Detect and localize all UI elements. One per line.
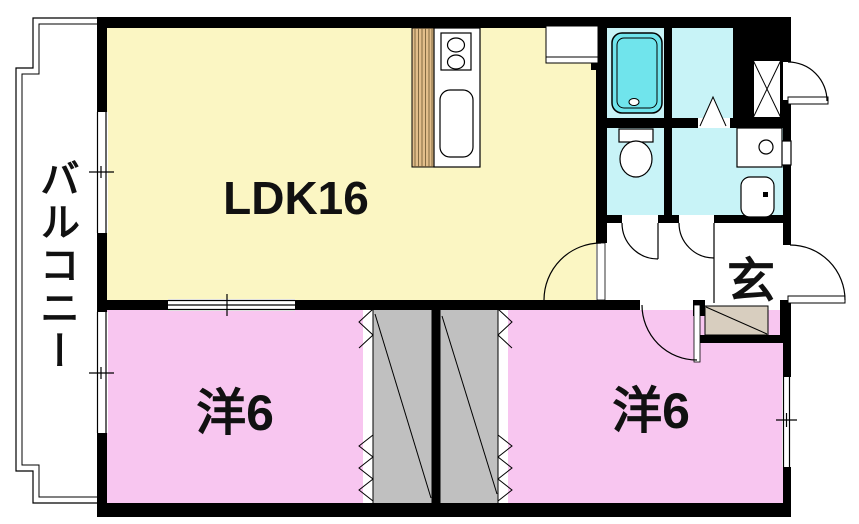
wall-right-d	[783, 342, 791, 377]
floor-plan: バルコニー LDK16 洋6 洋6 玄	[0, 0, 859, 524]
entrance-door-opening	[783, 245, 791, 300]
wall-left-2	[97, 233, 107, 312]
toilet-icon	[619, 129, 653, 177]
wall-right-c	[780, 300, 791, 342]
floor-plan-drawing: バルコニー LDK16 洋6 洋6 玄	[0, 0, 859, 524]
entrance-door	[788, 245, 845, 303]
entrance-label: 玄	[727, 255, 775, 308]
refrigerator-space-icon	[546, 26, 598, 70]
wall-bottom	[97, 503, 791, 517]
bedroom-left-label: 洋6	[196, 385, 274, 441]
kitchen-counter-icon	[412, 28, 434, 167]
wall-right-a	[783, 100, 791, 145]
room-shower	[672, 28, 733, 118]
wall-right-b	[783, 163, 791, 245]
wall-bath-shower	[664, 28, 672, 128]
wall-top	[97, 17, 791, 28]
balcony-label: バルコニー	[34, 158, 78, 373]
kitchen-sink-icon	[440, 90, 473, 157]
shaft-door	[788, 62, 828, 104]
room-ldk	[107, 28, 596, 300]
wall-left-1	[97, 28, 107, 112]
bedroom-door-opening	[640, 300, 693, 310]
shaft-door-opening	[783, 62, 791, 100]
bathtub-icon	[612, 33, 662, 113]
pipe-space-icon	[753, 60, 781, 118]
wall-toilet-wash	[664, 118, 672, 223]
wall-left-3	[97, 433, 107, 503]
wall-closet-divider	[432, 304, 440, 505]
wall-right-e	[783, 467, 791, 503]
washbasin-icon	[737, 128, 782, 167]
wall-hall-bottom	[596, 300, 640, 310]
wall-ldk-bottom-a	[107, 300, 168, 310]
gas-stove-icon	[441, 33, 471, 70]
wall-wet-mid	[596, 118, 791, 128]
wall-ldk-bottom-b	[295, 300, 596, 310]
wall-below-step	[700, 335, 783, 343]
entrance-step-icon	[705, 306, 768, 335]
toilet-door-opening	[622, 215, 658, 223]
washroom-door-opening	[679, 215, 714, 223]
bedroom-right-label: 洋6	[612, 383, 690, 439]
washing-machine-icon	[741, 177, 774, 217]
ldk-label: LDK16	[223, 172, 369, 224]
